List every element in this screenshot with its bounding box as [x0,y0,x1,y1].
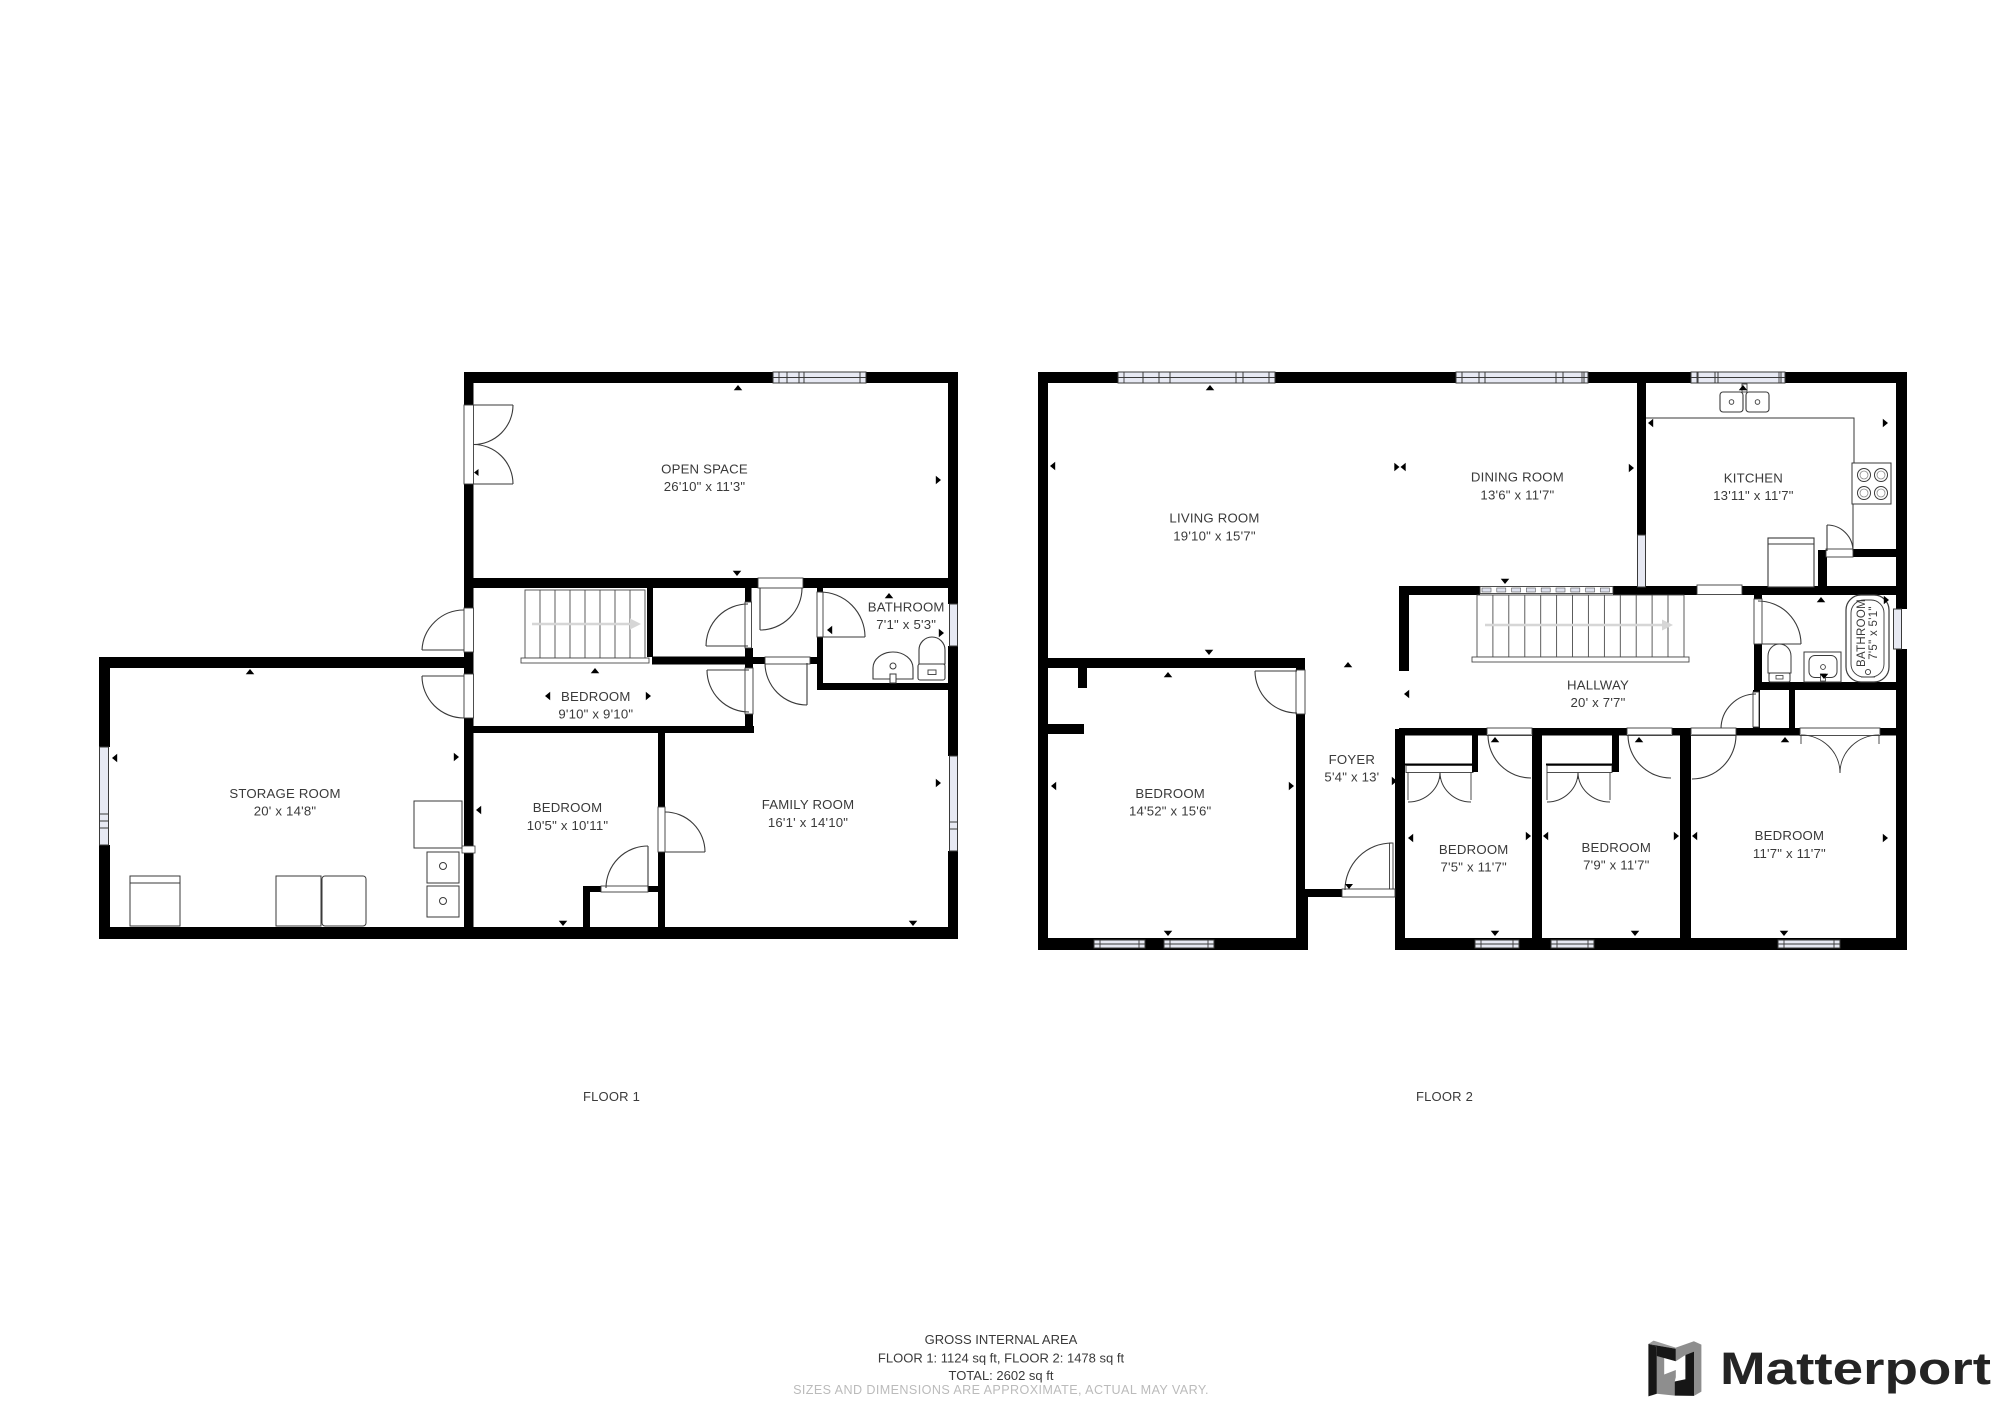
svg-text:FLOOR 1: FLOOR 1 [583,1089,640,1104]
svg-text:7'5" x 11'7": 7'5" x 11'7" [1440,860,1507,875]
svg-text:26'10" x 11'3": 26'10" x 11'3" [664,479,746,494]
svg-text:DINING ROOM: DINING ROOM [1471,470,1564,485]
svg-text:9'10" x 9'10": 9'10" x 9'10" [558,707,633,722]
svg-text:TOTAL: 2602 sq ft: TOTAL: 2602 sq ft [948,1368,1053,1383]
svg-text:BEDROOM: BEDROOM [561,689,631,704]
svg-text:GROSS INTERNAL AREA: GROSS INTERNAL AREA [925,1332,1078,1347]
svg-text:BATHROOM: BATHROOM [868,600,945,615]
svg-text:BEDROOM: BEDROOM [1582,840,1652,855]
svg-text:OPEN SPACE: OPEN SPACE [661,462,748,477]
svg-text:11'7" x 11'7": 11'7" x 11'7" [1753,846,1826,861]
svg-text:14'52" x 15'6": 14'52" x 15'6" [1129,804,1212,819]
svg-text:13'6" x 11'7": 13'6" x 11'7" [1480,487,1554,502]
svg-text:STORAGE ROOM: STORAGE ROOM [229,786,340,801]
svg-text:BEDROOM: BEDROOM [1439,842,1509,857]
svg-text:13'11" x 11'7": 13'11" x 11'7" [1713,488,1794,503]
svg-text:20' x 14'8": 20' x 14'8" [254,804,317,819]
svg-text:BEDROOM: BEDROOM [1755,828,1825,843]
svg-text:BATHROOM: BATHROOM [1856,599,1868,667]
svg-text:FLOOR 2: FLOOR 2 [1416,1089,1473,1104]
svg-text:10'5" x 10'11": 10'5" x 10'11" [527,818,609,833]
svg-text:7'1" x 5'3": 7'1" x 5'3" [876,617,936,632]
svg-text:Matterport: Matterport [1720,1343,1991,1394]
svg-text:SIZES AND DIMENSIONS ARE APPRO: SIZES AND DIMENSIONS ARE APPROXIMATE, AC… [793,1383,1209,1397]
svg-text:FAMILY ROOM: FAMILY ROOM [762,797,855,812]
svg-text:BEDROOM: BEDROOM [533,800,603,815]
svg-text:19'10" x 15'7": 19'10" x 15'7" [1173,528,1256,543]
svg-text:7'9" x 11'7": 7'9" x 11'7" [1583,858,1650,873]
svg-text:LIVING ROOM: LIVING ROOM [1169,511,1259,526]
svg-text:FOYER: FOYER [1329,752,1375,767]
svg-text:20' x 7'7": 20' x 7'7" [1571,695,1626,710]
svg-text:16'1' x 14'10": 16'1' x 14'10" [768,815,848,830]
svg-text:BEDROOM: BEDROOM [1135,786,1205,801]
svg-text:KITCHEN: KITCHEN [1724,471,1783,486]
svg-text:FLOOR 1: 1124 sq ft, FLOOR 2:: FLOOR 1: 1124 sq ft, FLOOR 2: 1478 sq ft [878,1350,1125,1365]
svg-text:5'4" x 13': 5'4" x 13' [1324,770,1379,785]
svg-text:7'5" x 5'1": 7'5" x 5'1" [1868,606,1880,660]
svg-text:HALLWAY: HALLWAY [1567,678,1629,693]
